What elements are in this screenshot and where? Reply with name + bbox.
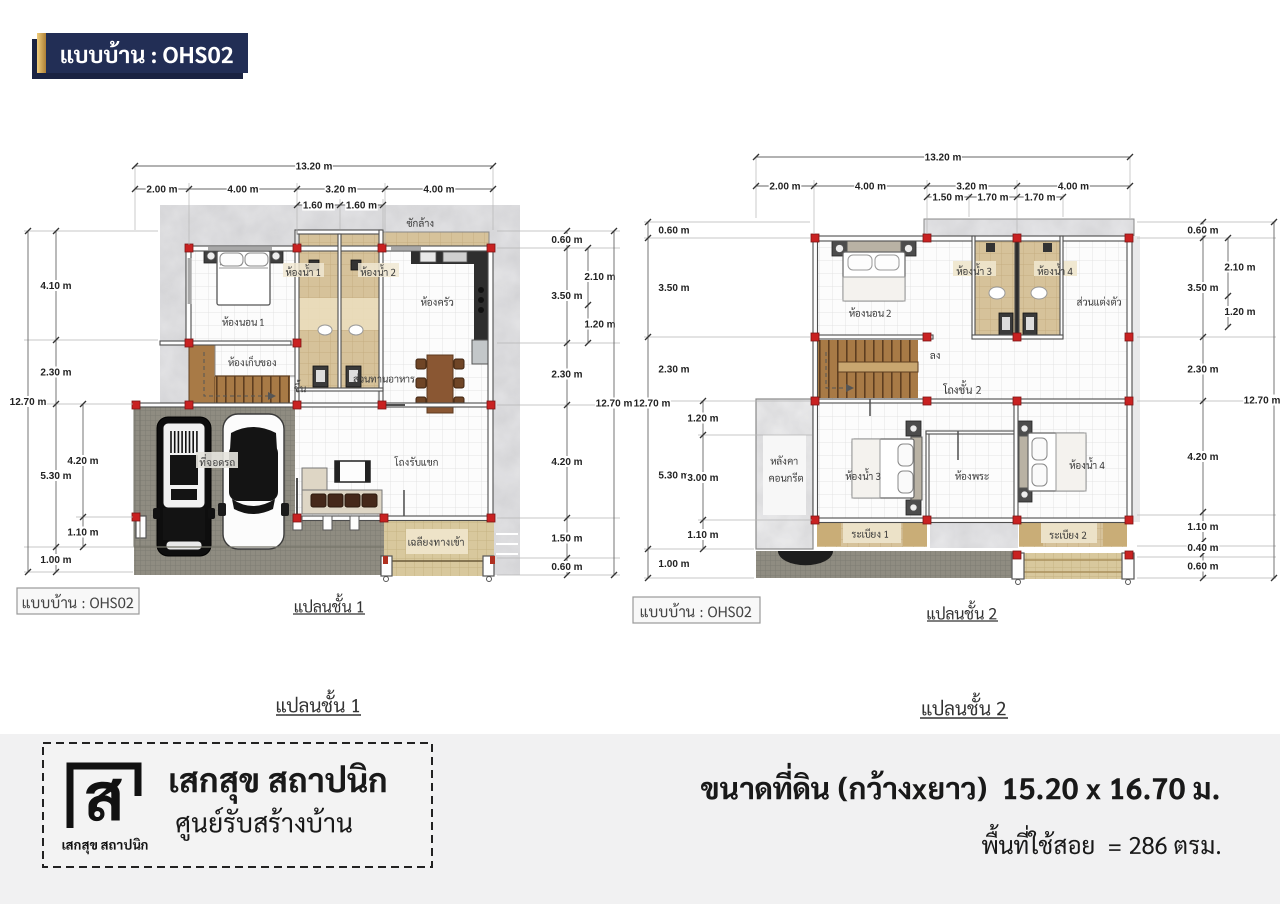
svg-text:4.20 m: 4.20 m <box>1187 452 1218 463</box>
svg-text:13.20 m: 13.20 m <box>925 153 962 164</box>
svg-text:0.60 m: 0.60 m <box>658 226 689 237</box>
svg-text:4.10 m: 4.10 m <box>40 281 71 292</box>
svg-text:0.40 m: 0.40 m <box>1187 543 1218 554</box>
svg-text:0.60 m: 0.60 m <box>551 235 582 246</box>
svg-text:3.20 m: 3.20 m <box>956 182 987 193</box>
svg-text:3.50 m: 3.50 m <box>658 283 689 294</box>
svg-text:12.70 m: 12.70 m <box>10 397 47 408</box>
svg-text:3.00 m: 3.00 m <box>687 473 718 484</box>
svg-text:0.60 m: 0.60 m <box>551 562 582 573</box>
svg-text:1.70 m: 1.70 m <box>1024 193 1055 204</box>
svg-text:12.70 m: 12.70 m <box>1244 396 1280 407</box>
svg-text:1.20 m: 1.20 m <box>1224 307 1255 318</box>
svg-text:3.20 m: 3.20 m <box>325 185 356 196</box>
svg-text:1.70 m: 1.70 m <box>977 193 1008 204</box>
svg-text:3.50 m: 3.50 m <box>1187 283 1218 294</box>
svg-text:1.20 m: 1.20 m <box>584 320 615 331</box>
svg-text:2.30 m: 2.30 m <box>40 368 71 379</box>
svg-text:2.10 m: 2.10 m <box>1224 263 1255 274</box>
svg-text:5.30 m: 5.30 m <box>40 471 71 482</box>
svg-text:2.00 m: 2.00 m <box>146 185 177 196</box>
svg-text:2.30 m: 2.30 m <box>658 365 689 376</box>
svg-text:4.00 m: 4.00 m <box>1058 182 1089 193</box>
svg-text:13.20 m: 13.20 m <box>296 162 333 173</box>
svg-text:4.20 m: 4.20 m <box>67 456 98 467</box>
svg-text:1.10 m: 1.10 m <box>687 530 718 541</box>
svg-text:1.50 m: 1.50 m <box>551 534 582 545</box>
svg-text:0.60 m: 0.60 m <box>1187 226 1218 237</box>
svg-text:12.70 m: 12.70 m <box>634 399 671 410</box>
svg-text:4.00 m: 4.00 m <box>227 185 258 196</box>
svg-text:1.60 m: 1.60 m <box>303 201 334 212</box>
svg-text:12.70 m: 12.70 m <box>596 399 633 410</box>
svg-text:1.20 m: 1.20 m <box>687 414 718 425</box>
svg-text:4.20 m: 4.20 m <box>551 457 582 468</box>
svg-text:2.00 m: 2.00 m <box>769 182 800 193</box>
svg-text:4.00 m: 4.00 m <box>855 182 886 193</box>
svg-text:1.00 m: 1.00 m <box>658 559 689 570</box>
svg-text:2.30 m: 2.30 m <box>551 370 582 381</box>
svg-text:1.10 m: 1.10 m <box>1187 522 1218 533</box>
svg-text:5.30 m: 5.30 m <box>658 471 689 482</box>
svg-text:3.50 m: 3.50 m <box>551 291 582 302</box>
svg-text:1.50 m: 1.50 m <box>932 193 963 204</box>
svg-text:1.60 m: 1.60 m <box>346 201 377 212</box>
svg-text:2.10 m: 2.10 m <box>584 272 615 283</box>
svg-text:4.00 m: 4.00 m <box>423 185 454 196</box>
svg-text:2.30 m: 2.30 m <box>1187 365 1218 376</box>
svg-text:1.00 m: 1.00 m <box>40 555 71 566</box>
svg-text:1.10 m: 1.10 m <box>67 528 98 539</box>
svg-text:0.60 m: 0.60 m <box>1187 562 1218 573</box>
